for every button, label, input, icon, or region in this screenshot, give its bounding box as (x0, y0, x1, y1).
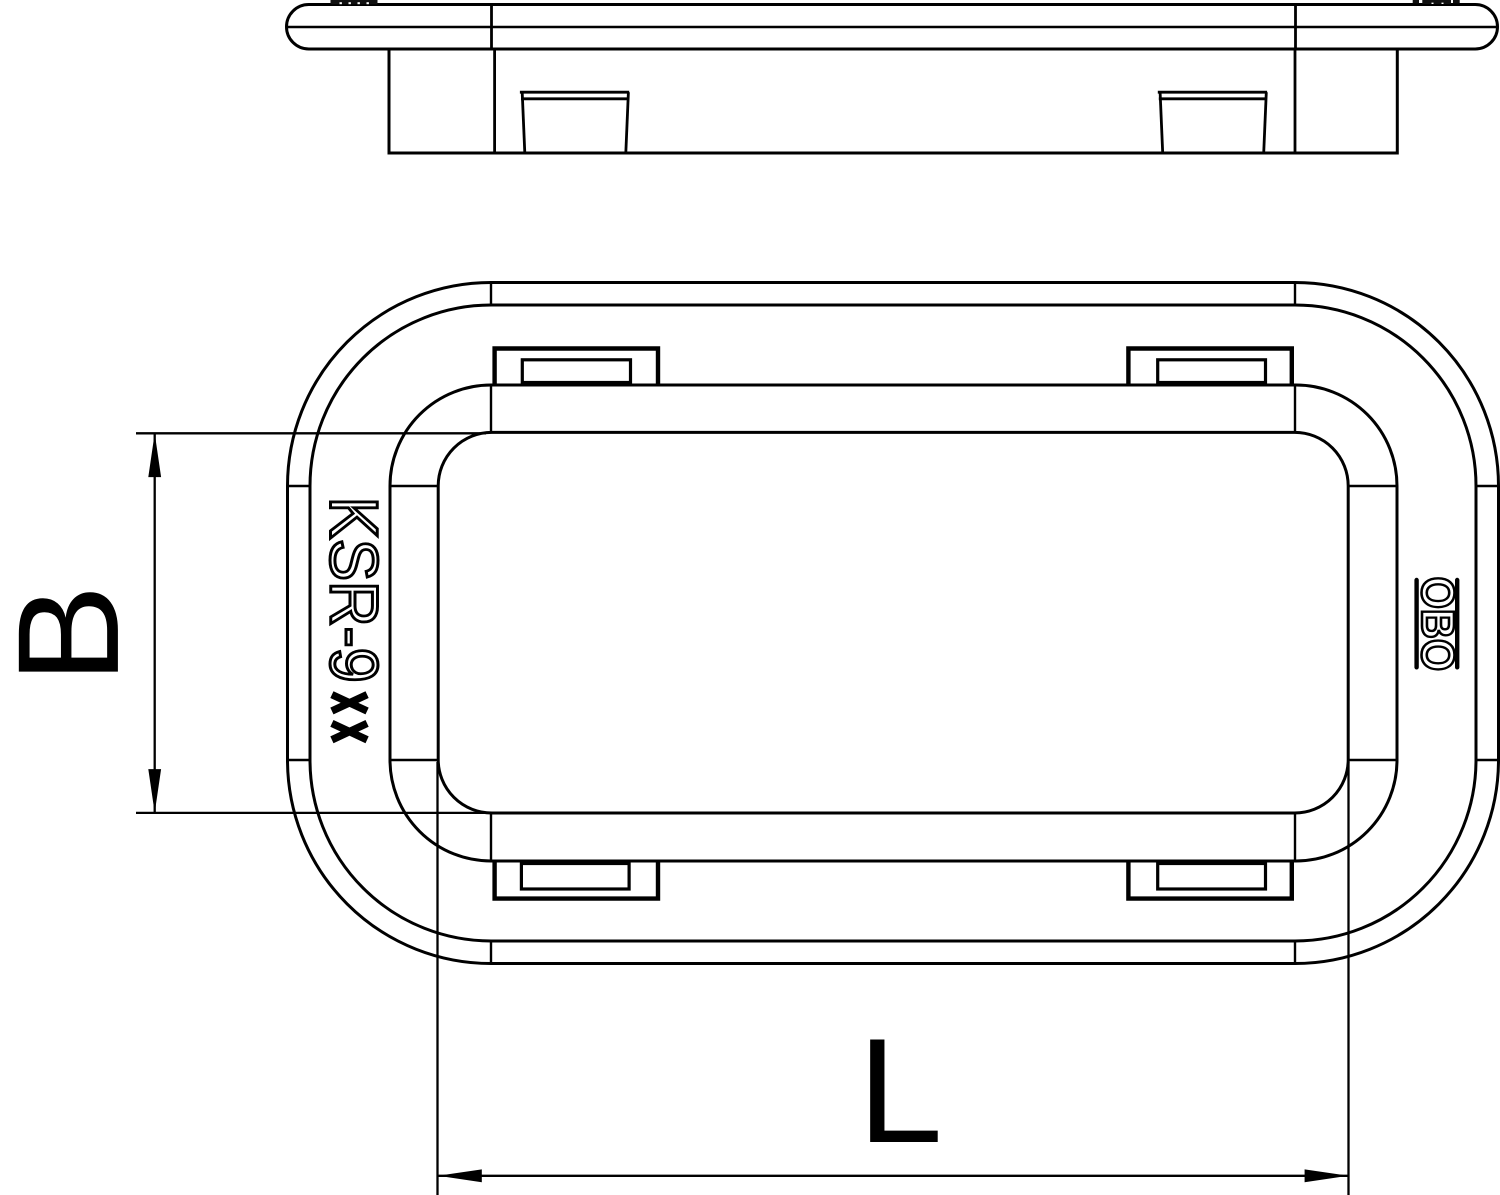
svg-text:KSR-9: KSR-9 (316, 497, 392, 683)
svg-text:B: B (0, 584, 149, 683)
svg-text:OBO: OBO (1412, 577, 1464, 672)
svg-text:L: L (858, 1008, 943, 1175)
